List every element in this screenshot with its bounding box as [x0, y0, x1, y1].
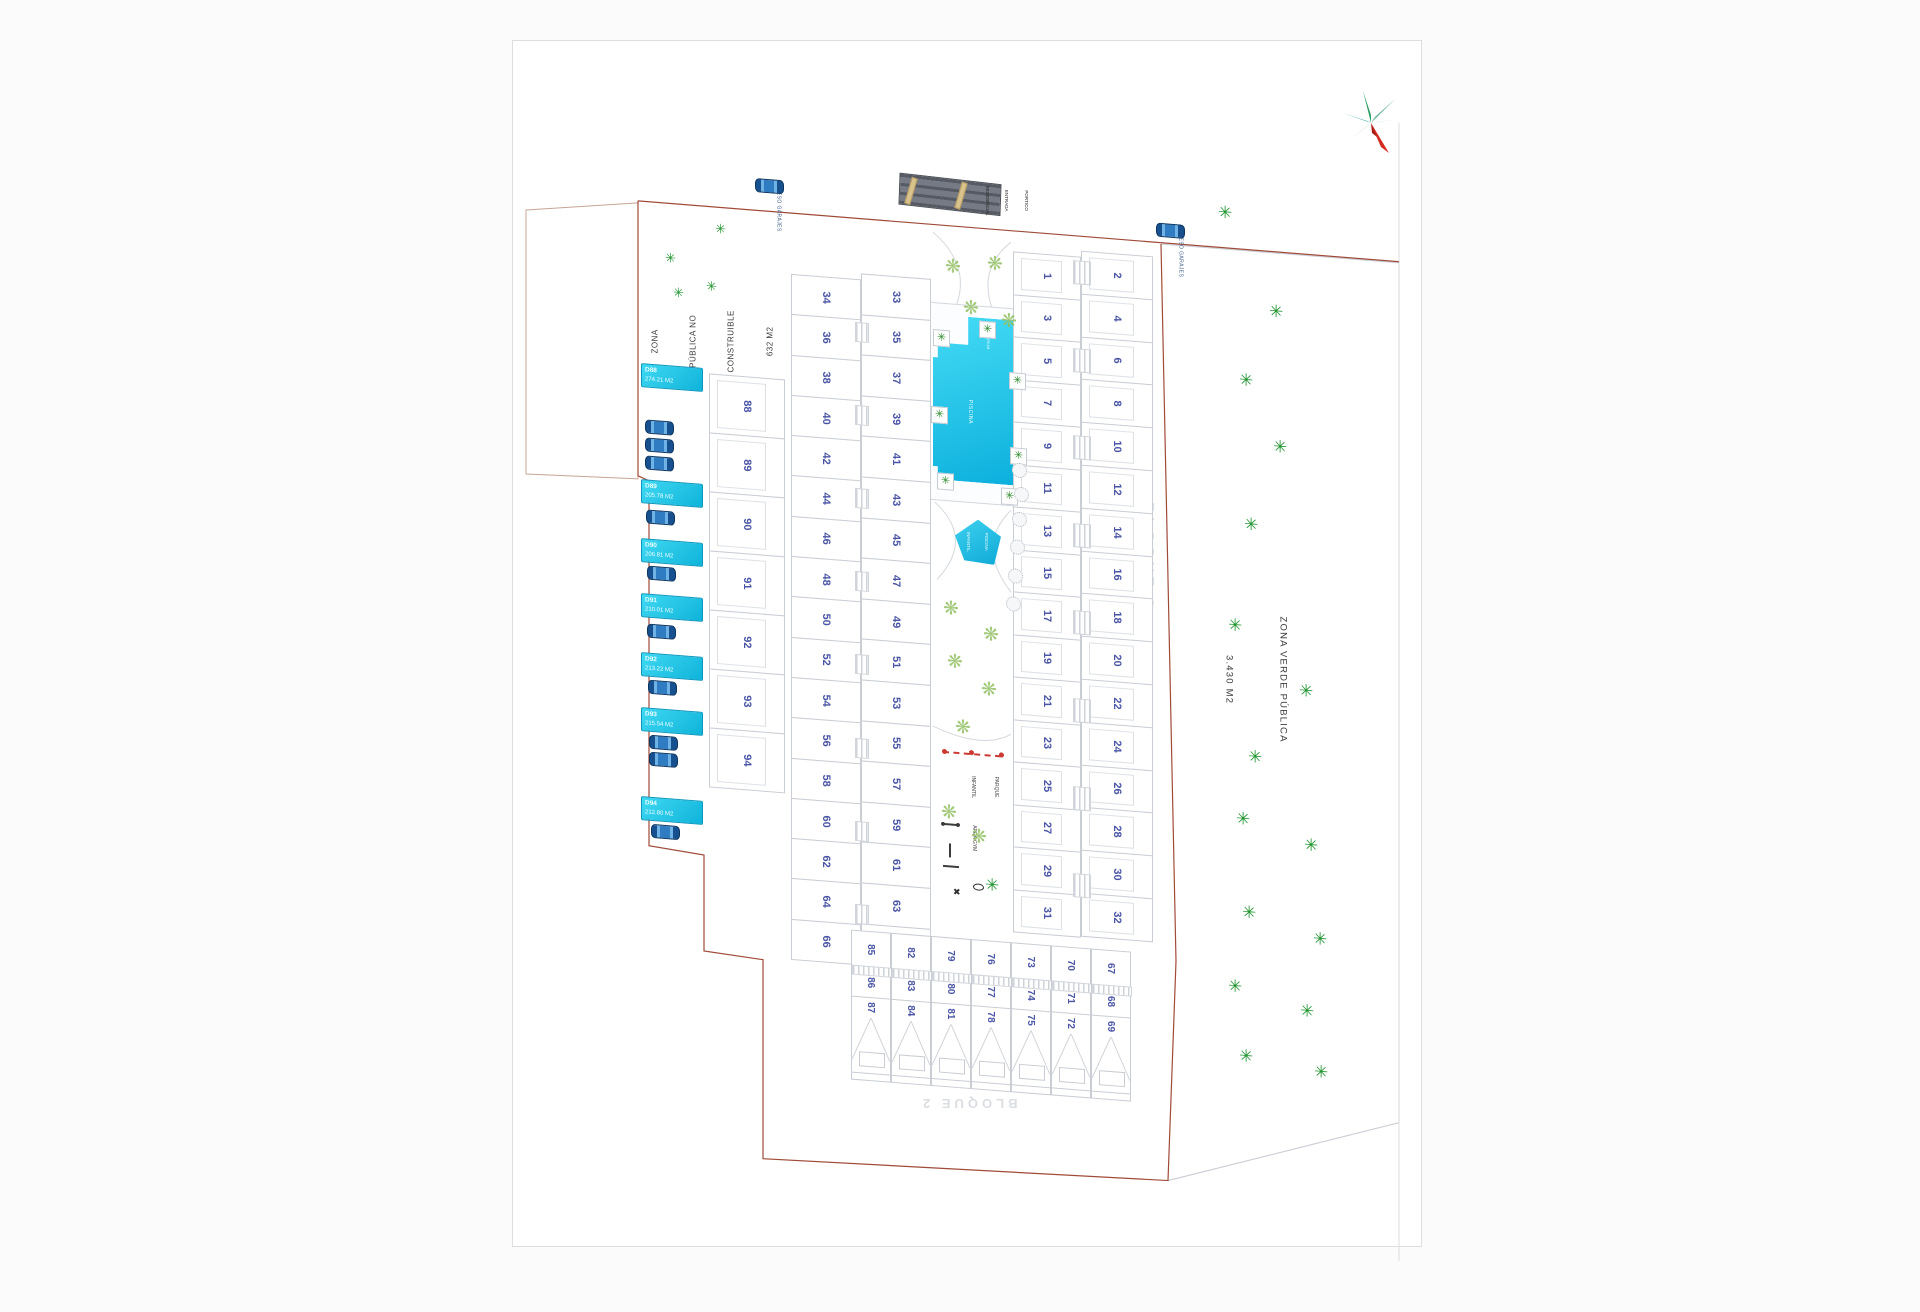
- strip-mid-even: 3436384042444648505254565860626466: [791, 275, 861, 966]
- garage-plot-box: D93215.54 M2: [641, 707, 703, 736]
- car-icon: [645, 455, 674, 471]
- tree-icon: ✳: [1304, 836, 1318, 854]
- terrace-box: [939, 1058, 965, 1075]
- plot-number: 63: [890, 900, 902, 912]
- plot-number: 20: [1111, 654, 1123, 666]
- plot-cell: 15: [1013, 549, 1081, 598]
- plot-number: 23: [1041, 737, 1053, 749]
- plot-cell: 90: [709, 491, 785, 557]
- plot-number: 36: [820, 331, 832, 343]
- stairs-hatch: [1073, 873, 1091, 898]
- tree-icon: ✳: [1248, 748, 1262, 766]
- tree-icon: ✳: [1269, 302, 1283, 320]
- plot-number: 29: [1041, 865, 1053, 877]
- plot-number: 11: [1041, 482, 1053, 494]
- plot-number: 55: [890, 737, 902, 749]
- plot-number: 2: [1111, 272, 1123, 278]
- tree-icon: ✳: [1273, 438, 1287, 456]
- plot-number: 52: [820, 654, 832, 666]
- plot-number: 42: [820, 452, 832, 464]
- site-marker-icon: ✖: [953, 888, 961, 898]
- plot-cell: 91: [709, 550, 785, 616]
- zona-publica-line: PÚBLICA NO: [687, 311, 700, 373]
- plot-cell: 34: [791, 274, 861, 321]
- plot-cell: 39: [861, 395, 931, 442]
- plot-cell: 58: [791, 757, 861, 804]
- tree-icon: ✳: [985, 876, 999, 894]
- car-icon: [647, 566, 676, 582]
- terrace-box: [979, 1061, 1005, 1078]
- plot-cell: 24: [1081, 721, 1153, 770]
- plot-number: 57: [890, 778, 902, 790]
- plot-cell: 18: [1081, 593, 1153, 642]
- plot-cell: 26: [1081, 764, 1153, 813]
- tree-sketch-icon: ❋: [1001, 311, 1017, 331]
- tree-icon: ✳: [1228, 977, 1242, 995]
- plot-number: 24: [1111, 740, 1123, 752]
- plot-number: 30: [1111, 868, 1123, 880]
- plot-number: 9: [1041, 443, 1053, 449]
- plot-number: 76: [986, 954, 997, 965]
- plot-number: 88: [741, 400, 753, 412]
- plot-number: 64: [820, 896, 832, 908]
- plot-cell: 88: [709, 373, 785, 439]
- plot-cell: 64: [791, 878, 861, 925]
- plot-number: 3: [1041, 315, 1053, 321]
- plot-cell: 69: [1092, 1016, 1130, 1095]
- stairs-hatch: [855, 488, 869, 509]
- car-icon: [649, 735, 678, 751]
- zona-publica-line: CONSTRUIBLE: [726, 311, 739, 373]
- plot-number: 80: [946, 983, 957, 994]
- tree-icon: ✳: [1239, 1047, 1253, 1065]
- strip-mid-odd: 3335373941434547495153555759616365: [861, 274, 931, 970]
- plot-cell: 3: [1013, 294, 1081, 343]
- garage-plot-box: D89205.78 M2: [641, 479, 703, 508]
- terrace-box: [859, 1051, 885, 1068]
- plot-number: 47: [890, 575, 902, 587]
- plot-number: 12: [1111, 483, 1123, 495]
- tree-icon: ✳: [1313, 930, 1327, 948]
- playground-line: PARQUE: [991, 776, 999, 798]
- plot-cell: 38: [791, 354, 861, 401]
- plot-number: 87: [866, 1002, 877, 1013]
- garage-plot-box: D92213.22 M2: [641, 652, 703, 681]
- plot-cell: 83: [892, 970, 930, 1003]
- plot-cell: 2: [1081, 251, 1153, 300]
- plot-cell: 84: [892, 1000, 930, 1079]
- kids-pool-label: PISCINA INFANTIL: [963, 520, 991, 562]
- plot-number: 7: [1041, 400, 1053, 406]
- plot-cell: 85: [852, 931, 890, 970]
- plot-cell: 25: [1013, 761, 1081, 810]
- plot-cell: 33: [861, 273, 931, 320]
- plot-cell: 70: [1052, 946, 1090, 985]
- plot-cell: 27: [1013, 804, 1081, 853]
- bush-icon: [1012, 511, 1027, 527]
- plot-number: 19: [1041, 652, 1053, 664]
- portico-post: [904, 177, 917, 205]
- plot-cell: 28: [1081, 807, 1153, 856]
- plot-number: 60: [820, 815, 832, 827]
- garage-plot-box: D91210.01 M2: [641, 593, 703, 622]
- plot-number: 50: [820, 614, 832, 626]
- plot-cell: 76: [972, 940, 1010, 979]
- plot-number: 10: [1111, 440, 1123, 452]
- tree-icon: ✳: [1299, 682, 1313, 700]
- compass-rose: [1341, 89, 1405, 161]
- plot-number: 84: [906, 1005, 917, 1016]
- plot-number: 54: [820, 694, 832, 706]
- plot-cell: 46: [791, 516, 861, 563]
- plot-number: 8: [1111, 401, 1123, 407]
- plot-number: 70: [1066, 960, 1077, 971]
- palm-tree-icon: ✳: [931, 406, 948, 424]
- plot-cell: 89: [709, 432, 785, 498]
- tree-icon: ✳: [1244, 516, 1258, 534]
- car-icon: [1156, 223, 1185, 239]
- plot-number: 90: [741, 518, 753, 530]
- plot-number: 37: [890, 372, 902, 384]
- portico-line: RESIDENCIAL: [983, 186, 990, 216]
- bloque2-column: 676869: [1091, 948, 1131, 1101]
- plot-number: 27: [1041, 822, 1053, 834]
- plot-number: 33: [890, 291, 902, 303]
- zona-verde-label: ZONA VERDE PÚBLICA 3.430 M2: [1203, 615, 1307, 743]
- tree-sketch-icon: ❋: [971, 827, 987, 847]
- plot-number: 85: [866, 944, 877, 955]
- tree-sketch-icon: ❋: [981, 680, 997, 700]
- plot-number: 34: [820, 291, 832, 303]
- strip-houses: 88899091929394: [709, 374, 785, 793]
- garage-plot-box: D94212.80 M2: [641, 796, 703, 825]
- stairs-hatch: [1073, 786, 1091, 811]
- tree-icon: ✳: [706, 279, 717, 293]
- garage-area: 274.21 M2: [645, 376, 673, 384]
- plot-cell: 94: [709, 727, 785, 793]
- plot-number: 41: [890, 453, 902, 465]
- plot-cell: 19: [1013, 634, 1081, 683]
- tree-icon: ✳: [673, 286, 684, 300]
- bloque2-column: 707172: [1051, 945, 1091, 1098]
- terrace-box: [1059, 1067, 1085, 1084]
- terrace-box: [1099, 1070, 1125, 1087]
- stairs-hatch: [855, 322, 869, 343]
- plot-cell: 20: [1081, 636, 1153, 685]
- plot-cell: 77: [972, 976, 1010, 1009]
- tree-sketch-icon: ❋: [943, 599, 959, 619]
- tree-sketch-icon: ❋: [947, 652, 963, 672]
- plot-number: 86: [866, 977, 877, 988]
- garage-area: 215.54 M2: [645, 720, 673, 728]
- stairs-hatch: [1073, 610, 1091, 635]
- plot-cell: 42: [791, 435, 861, 482]
- playground-marker: [942, 749, 947, 754]
- site-marker-icon: [973, 883, 984, 891]
- plot-cell: 93: [709, 668, 785, 734]
- plot-number: 72: [1066, 1018, 1077, 1029]
- plot-cell: 67: [1092, 950, 1130, 989]
- car-icon: [648, 680, 677, 696]
- garage-area: 210.01 M2: [645, 606, 673, 614]
- tree-sketch-icon: ❋: [955, 718, 971, 738]
- stairs-hatch: [855, 821, 869, 842]
- plot-number: 15: [1041, 567, 1053, 579]
- plot-number: 74: [1026, 990, 1037, 1001]
- plot-number: 38: [820, 372, 832, 384]
- plot-cell: 16: [1081, 550, 1153, 599]
- plot-cell: 52: [791, 637, 861, 684]
- garage-area: 212.80 M2: [645, 809, 673, 817]
- portico-line: ENTRADA: [1003, 186, 1010, 216]
- plot-cell: 35: [861, 314, 931, 361]
- plot-number: 82: [906, 947, 917, 958]
- plot-number: 71: [1066, 993, 1077, 1004]
- plot-cell: 81: [932, 1003, 970, 1082]
- plot-cell: 45: [861, 517, 931, 564]
- stairs-hatch: [1073, 435, 1091, 460]
- plot-number: 59: [890, 819, 902, 831]
- bloque2-column: 798081: [931, 936, 971, 1089]
- plot-cell: 87: [852, 997, 890, 1076]
- plot-cell: 40: [791, 395, 861, 442]
- kids-pool-line: INFANTIL: [964, 532, 970, 552]
- tree-icon: ✳: [1239, 371, 1253, 389]
- stairs-hatch: [855, 654, 869, 675]
- plot-cell: 73: [1012, 943, 1050, 982]
- plot-cell: 49: [861, 598, 931, 645]
- plot-cell: 12: [1081, 465, 1153, 514]
- plot-cell: 80: [932, 973, 970, 1006]
- bush-icon: [1014, 486, 1029, 502]
- plot-number: 91: [741, 577, 753, 589]
- plot-cell: 74: [1012, 979, 1050, 1012]
- garage-area: 213.22 M2: [645, 665, 673, 673]
- garage-plot-box: D88274.21 M2: [641, 363, 703, 392]
- plot-cell: 4: [1081, 293, 1153, 342]
- bloque2-column: 767778: [971, 939, 1011, 1092]
- garage-area: 206.81 M2: [645, 551, 673, 559]
- plot-number: 62: [820, 855, 832, 867]
- playground-marker: [969, 750, 974, 755]
- plot-cell: 8: [1081, 379, 1153, 428]
- plot-cell: 51: [861, 639, 931, 686]
- plot-number: 66: [820, 936, 832, 948]
- plot-cell: 37: [861, 355, 931, 402]
- plot-cell: 68: [1092, 986, 1130, 1019]
- plot-number: 93: [741, 695, 753, 707]
- tree-icon: ✳: [1236, 810, 1250, 828]
- car-icon: [649, 752, 678, 768]
- stairs-hatch: [1073, 348, 1091, 373]
- plot-cell: 82: [892, 934, 930, 973]
- plot-cell: 61: [861, 842, 931, 889]
- tree-sketch-icon: ❋: [963, 298, 979, 318]
- plot-number: 48: [820, 573, 832, 585]
- plot-number: 28: [1111, 826, 1123, 838]
- bloque2-column: 828384: [891, 933, 931, 1086]
- plot-number: 75: [1026, 1015, 1037, 1026]
- portico-post: [954, 181, 967, 209]
- strip-bloque1-even: 2468101214161820222426283032: [1081, 252, 1153, 942]
- plot-number: 69: [1106, 1021, 1117, 1032]
- tree-icon: ✳: [1314, 1063, 1328, 1081]
- plot-cell: 59: [861, 801, 931, 848]
- plot-cell: 10: [1081, 422, 1153, 471]
- plot-number: 79: [946, 950, 957, 961]
- zona-verde-line: 3.430 M2: [1219, 616, 1237, 742]
- terrace-box: [1019, 1064, 1045, 1081]
- plot-cell: 23: [1013, 719, 1081, 768]
- plot-number: 58: [820, 775, 832, 787]
- plot-cell: 55: [861, 720, 931, 767]
- plot-cell: 32: [1081, 893, 1153, 942]
- plot-number: 26: [1111, 783, 1123, 795]
- plot-cell: 41: [861, 436, 931, 483]
- tree-icon: ✳: [1228, 616, 1242, 634]
- plot-cell: 6: [1081, 336, 1153, 385]
- plot-cell: 72: [1052, 1012, 1090, 1091]
- plot-cell: 57: [861, 761, 931, 808]
- plot-number: 25: [1041, 780, 1053, 792]
- plot-number: 22: [1111, 697, 1123, 709]
- plot-number: 35: [890, 331, 902, 343]
- path-curve: [933, 726, 1011, 743]
- tree-icon: ✳: [665, 251, 676, 265]
- terrace-box: [899, 1054, 925, 1071]
- plot-number: 68: [1106, 996, 1117, 1007]
- zona-verde-line: ZONA VERDE PÚBLICA: [1273, 616, 1291, 742]
- stairs-hatch: [855, 405, 869, 426]
- plot-number: 21: [1041, 695, 1053, 707]
- portico-label: PORTICO ENTRADA RESIDENCIAL: [995, 175, 1017, 227]
- plot-number: 73: [1026, 957, 1037, 968]
- plot-number: 46: [820, 533, 832, 545]
- car-icon: [651, 824, 680, 840]
- plot-cell: 48: [791, 556, 861, 603]
- plot-cell: 14: [1081, 507, 1153, 556]
- plot-cell: 36: [791, 314, 861, 361]
- tree-icon: ✳: [715, 222, 726, 236]
- bloque2-column: 737475: [1011, 942, 1051, 1095]
- stairs-hatch: [1073, 523, 1091, 548]
- plot-cell: 63: [861, 882, 931, 929]
- plot-number: 16: [1111, 569, 1123, 581]
- pool-label: PISCINA: [961, 386, 979, 437]
- plot-number: 67: [1106, 963, 1117, 974]
- plot-number: 45: [890, 534, 902, 546]
- plot-cell: 47: [861, 558, 931, 605]
- plot-cell: 31: [1013, 889, 1081, 938]
- plot-cell: 30: [1081, 850, 1153, 899]
- stairs-hatch: [1073, 260, 1091, 285]
- bush-icon: [1010, 539, 1025, 555]
- stairs-hatch: [855, 904, 869, 925]
- tree-sketch-icon: ❋: [941, 803, 957, 823]
- tree-icon: ✳: [1218, 203, 1232, 221]
- plot-number: 56: [820, 734, 832, 746]
- screenshot-canvas: { "sheet": { "access_garage_labels": ["A…: [0, 0, 1920, 1280]
- stairs-hatch: [1073, 698, 1091, 723]
- plot-cell: 54: [791, 677, 861, 724]
- plot-cell: 1: [1013, 251, 1081, 300]
- plot-cell: 92: [709, 609, 785, 675]
- plot-cell: 22: [1081, 679, 1153, 728]
- plot-number: 6: [1111, 358, 1123, 364]
- tree-sketch-icon: ❋: [983, 625, 999, 645]
- plot-number: 31: [1041, 907, 1053, 919]
- plot-cell: 43: [861, 476, 931, 523]
- site-plan: ZONA PÚBLICA NO CONSTRUIBLE 632 M2 ZONA …: [513, 41, 1421, 1312]
- tree-sketch-icon: ❋: [987, 254, 1003, 274]
- garage-area: 205.78 M2: [645, 492, 673, 500]
- plot-number: 81: [946, 1008, 957, 1019]
- palm-tree-icon: ✳: [933, 329, 950, 347]
- plot-number: 53: [890, 697, 902, 709]
- plot-cell: 86: [852, 967, 890, 1000]
- plot-number: 17: [1041, 610, 1053, 622]
- gym-equipment-icon: [949, 843, 951, 857]
- plot-cell: 56: [791, 717, 861, 764]
- plot-number: 18: [1111, 612, 1123, 624]
- car-icon: [645, 419, 674, 435]
- plot-number: 32: [1111, 911, 1123, 923]
- plot-number: 1: [1041, 273, 1053, 279]
- bloque2-column: 858687: [851, 930, 891, 1083]
- garage-plot-box: D90206.81 M2: [641, 538, 703, 567]
- plot-cell: 60: [791, 798, 861, 845]
- plot-number: 92: [741, 636, 753, 648]
- plot-number: 5: [1041, 358, 1053, 364]
- zona-publica-outline: [526, 194, 638, 483]
- plot-number: 4: [1111, 315, 1123, 321]
- stairs-hatch: [855, 571, 869, 592]
- plot-number: 78: [986, 1012, 997, 1023]
- plot-cell: 44: [791, 475, 861, 522]
- plot-cell: 78: [972, 1006, 1010, 1085]
- playground-marker: [999, 752, 1004, 757]
- bush-icon: [1008, 568, 1023, 584]
- plot-number: 51: [890, 656, 902, 668]
- bush-icon: [1012, 462, 1027, 478]
- car-icon: [647, 624, 676, 640]
- plot-number: 49: [890, 616, 902, 628]
- plot-cell: 29: [1013, 846, 1081, 895]
- plot-cell: 62: [791, 838, 861, 885]
- tree-icon: ✳: [1242, 903, 1256, 921]
- plot-number: 40: [820, 412, 832, 424]
- palm-tree-icon: ✳: [1009, 372, 1026, 390]
- playground-label: PARQUE INFANTIL: [971, 763, 997, 811]
- plot-cell: 75: [1012, 1009, 1050, 1088]
- plot-number: 39: [890, 413, 902, 425]
- car-icon: [646, 509, 675, 525]
- plot-number: 14: [1111, 526, 1123, 538]
- tree-sketch-icon: ❋: [945, 257, 961, 277]
- car-icon: [645, 437, 674, 453]
- strip-bloque1-odd: 135791113151719212325272931: [1013, 252, 1081, 937]
- kids-pool-line: PISCINA: [983, 532, 989, 552]
- zona-publica-line: 632 M2: [764, 311, 777, 373]
- plot-cell: 53: [861, 679, 931, 726]
- plot-cell: 79: [932, 937, 970, 976]
- plot-number: 77: [986, 987, 997, 998]
- stairs-hatch: [855, 738, 869, 759]
- plot-cell: 17: [1013, 591, 1081, 640]
- plot-number: 83: [906, 980, 917, 991]
- plot-cell: 71: [1052, 982, 1090, 1015]
- car-icon: [755, 178, 784, 194]
